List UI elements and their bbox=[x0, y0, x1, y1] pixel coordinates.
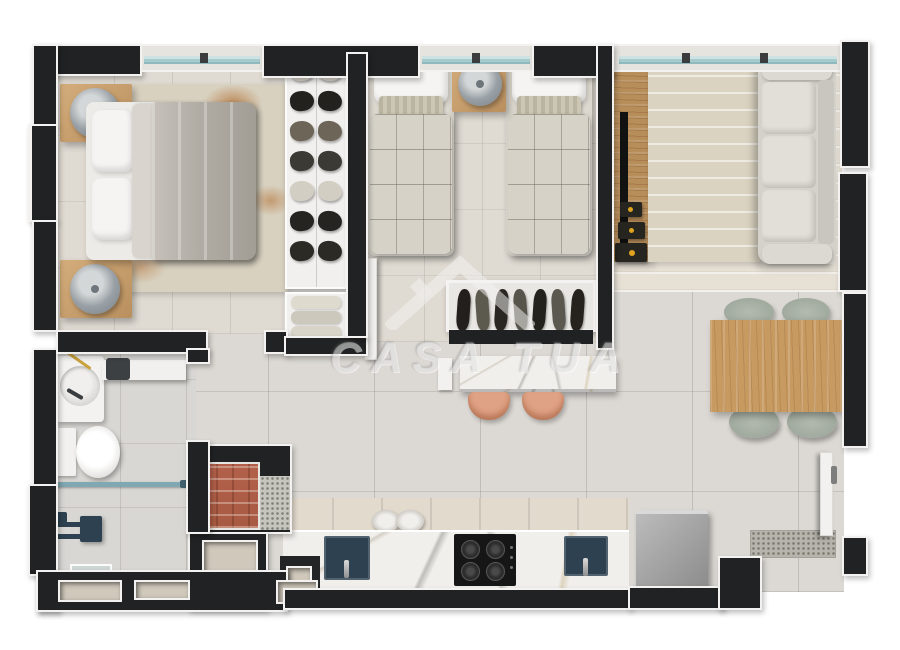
pillow bbox=[92, 178, 134, 240]
sofa-seat-cushion bbox=[762, 82, 816, 134]
burner bbox=[486, 540, 505, 559]
burner bbox=[461, 562, 480, 581]
window-handle bbox=[682, 53, 690, 63]
wall-segment bbox=[842, 292, 868, 448]
service-stone-floor bbox=[260, 476, 290, 530]
sofa-back-cushions bbox=[818, 80, 834, 244]
hanging-clothes-rack bbox=[446, 280, 596, 332]
wall-segment bbox=[628, 586, 724, 610]
window-handle bbox=[760, 53, 768, 63]
clothes-item bbox=[289, 180, 315, 202]
cooktop-knob bbox=[510, 546, 513, 549]
wall-segment bbox=[718, 556, 762, 610]
hanging-clothes-item bbox=[551, 289, 567, 332]
clothes-item bbox=[317, 150, 343, 172]
wall-segment bbox=[346, 52, 368, 338]
duvet bbox=[152, 102, 256, 260]
clothes-item bbox=[289, 210, 315, 232]
wall-segment bbox=[32, 44, 58, 126]
hanging-clothes-item bbox=[456, 289, 472, 332]
hanging-clothes-item bbox=[570, 289, 586, 332]
shower-pipe bbox=[58, 534, 82, 539]
clothes-item bbox=[317, 240, 343, 262]
sofa-seat-cushion bbox=[762, 190, 816, 242]
wall-segment bbox=[283, 588, 631, 610]
faucet bbox=[583, 558, 588, 576]
clothes-item bbox=[317, 180, 343, 202]
cooktop-knob bbox=[510, 566, 513, 569]
side-window-box bbox=[28, 124, 58, 222]
upper-cabinets bbox=[283, 498, 629, 532]
quilted-duvet bbox=[508, 114, 590, 254]
clothes-item bbox=[289, 90, 315, 112]
wall-segment bbox=[28, 484, 58, 576]
cooktop bbox=[454, 534, 516, 586]
window bbox=[140, 44, 264, 72]
door-jamb bbox=[186, 348, 210, 364]
closet-shelf-row bbox=[287, 177, 345, 207]
toilet-tank bbox=[56, 428, 76, 476]
sofa-seat-cushion bbox=[762, 136, 816, 188]
wall-segment bbox=[186, 440, 210, 534]
burner bbox=[461, 540, 480, 559]
towel-roll bbox=[106, 358, 130, 380]
window bbox=[612, 44, 844, 72]
decor-dot bbox=[628, 207, 633, 212]
decor-dot bbox=[629, 228, 634, 233]
window bbox=[418, 44, 534, 72]
wardrobe-base-bar bbox=[449, 330, 593, 344]
clothes-item bbox=[289, 240, 315, 262]
hanging-clothes-item bbox=[475, 289, 491, 332]
decor-dot bbox=[629, 250, 635, 256]
closet-shelf-row bbox=[287, 207, 345, 237]
pillow bbox=[92, 110, 134, 172]
toilet-bowl bbox=[76, 426, 120, 478]
entry-door-handle bbox=[831, 466, 837, 484]
sofa-armrest bbox=[762, 244, 832, 264]
cookware-pot bbox=[396, 510, 424, 532]
wall-segment bbox=[262, 44, 420, 78]
wall-segment bbox=[840, 40, 870, 168]
window-handle bbox=[472, 53, 480, 63]
wall-segment bbox=[284, 336, 368, 356]
island-leg bbox=[438, 358, 452, 390]
clothes-item bbox=[289, 150, 315, 172]
burner bbox=[486, 562, 505, 581]
hanging-clothes-item bbox=[532, 289, 548, 332]
kitchen-island bbox=[460, 356, 616, 392]
cooktop-knob bbox=[510, 556, 513, 559]
wall-niche bbox=[58, 580, 122, 602]
wall-segment bbox=[32, 220, 58, 332]
closet-shelf-row bbox=[287, 237, 345, 267]
dining-table bbox=[710, 320, 842, 412]
floor-plan-canvas: CASA TUA bbox=[0, 0, 900, 650]
vanity-basin bbox=[60, 366, 100, 406]
wall-segment bbox=[32, 348, 58, 486]
hanging-clothes-item bbox=[513, 289, 529, 332]
hanging-clothes-item bbox=[494, 289, 510, 332]
closet-shelf-row bbox=[287, 87, 345, 117]
wall-segment bbox=[838, 172, 868, 292]
entry-door bbox=[820, 452, 833, 536]
window-handle bbox=[200, 53, 208, 63]
table-lamp bbox=[70, 264, 120, 314]
faucet bbox=[344, 560, 349, 578]
wall-segment bbox=[842, 536, 868, 576]
shower-partition bbox=[56, 482, 188, 487]
wardrobe-closet bbox=[285, 55, 347, 289]
closet-shelf-row bbox=[287, 117, 345, 147]
living-rug bbox=[648, 58, 760, 262]
clothes-item bbox=[317, 90, 343, 112]
wardrobe-closet-lower bbox=[285, 292, 347, 338]
clothes-item bbox=[317, 210, 343, 232]
closet-shelf-row bbox=[287, 147, 345, 177]
clothes-item bbox=[317, 120, 343, 142]
wall-segment bbox=[596, 44, 614, 350]
refrigerator bbox=[636, 510, 708, 590]
wall-niche bbox=[134, 580, 190, 600]
quilted-duvet bbox=[370, 114, 452, 254]
linen-item bbox=[291, 296, 341, 309]
window-glass bbox=[619, 56, 838, 64]
shower-fixture bbox=[80, 516, 102, 542]
clothes-item bbox=[289, 120, 315, 142]
linen-item bbox=[291, 311, 341, 324]
